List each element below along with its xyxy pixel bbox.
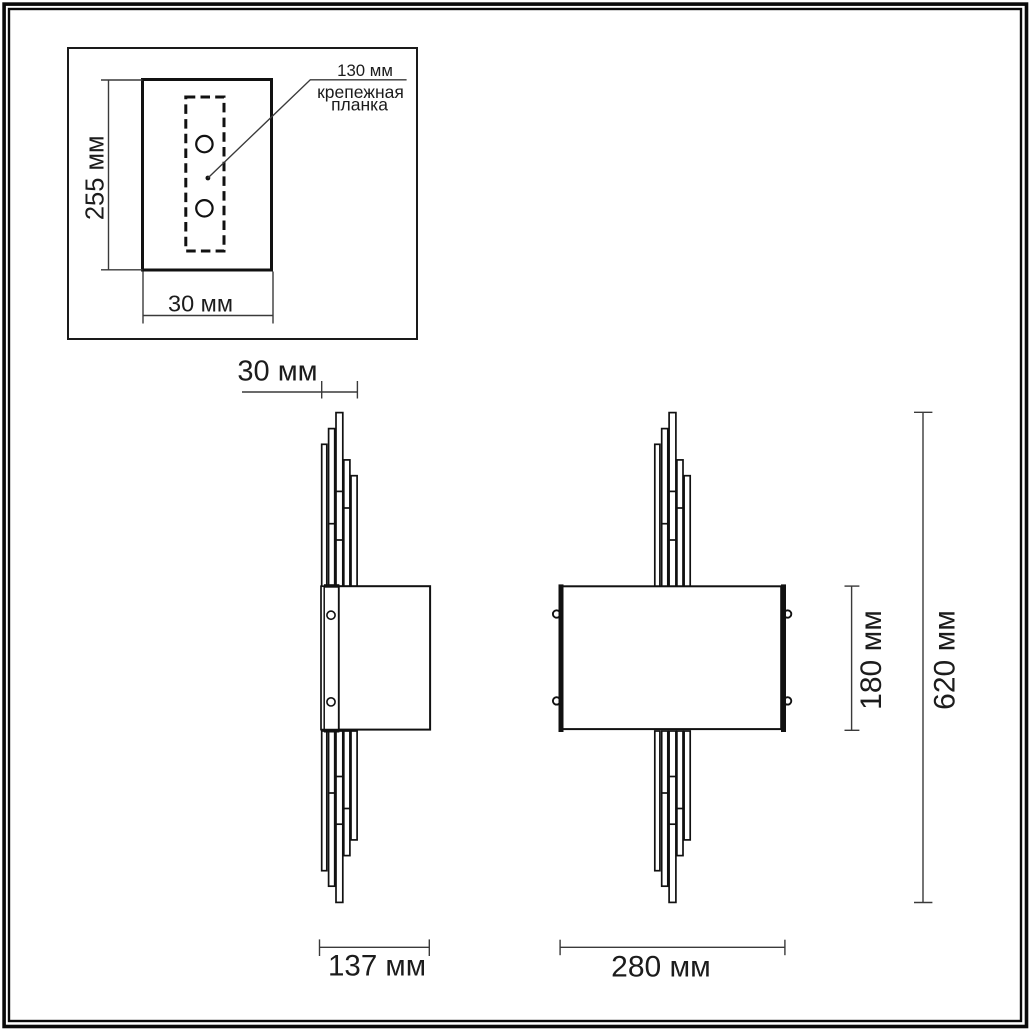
svg-text:137 мм: 137 мм [328, 949, 426, 982]
svg-text:620 мм: 620 мм [929, 610, 962, 710]
svg-text:130 мм: 130 мм [337, 61, 393, 80]
svg-text:180 мм: 180 мм [855, 610, 888, 710]
svg-text:30 мм: 30 мм [237, 356, 317, 388]
svg-text:280 мм: 280 мм [611, 950, 711, 983]
svg-text:30 мм: 30 мм [168, 291, 233, 317]
svg-text:255 мм: 255 мм [81, 135, 109, 220]
svg-text:планка: планка [331, 95, 388, 115]
